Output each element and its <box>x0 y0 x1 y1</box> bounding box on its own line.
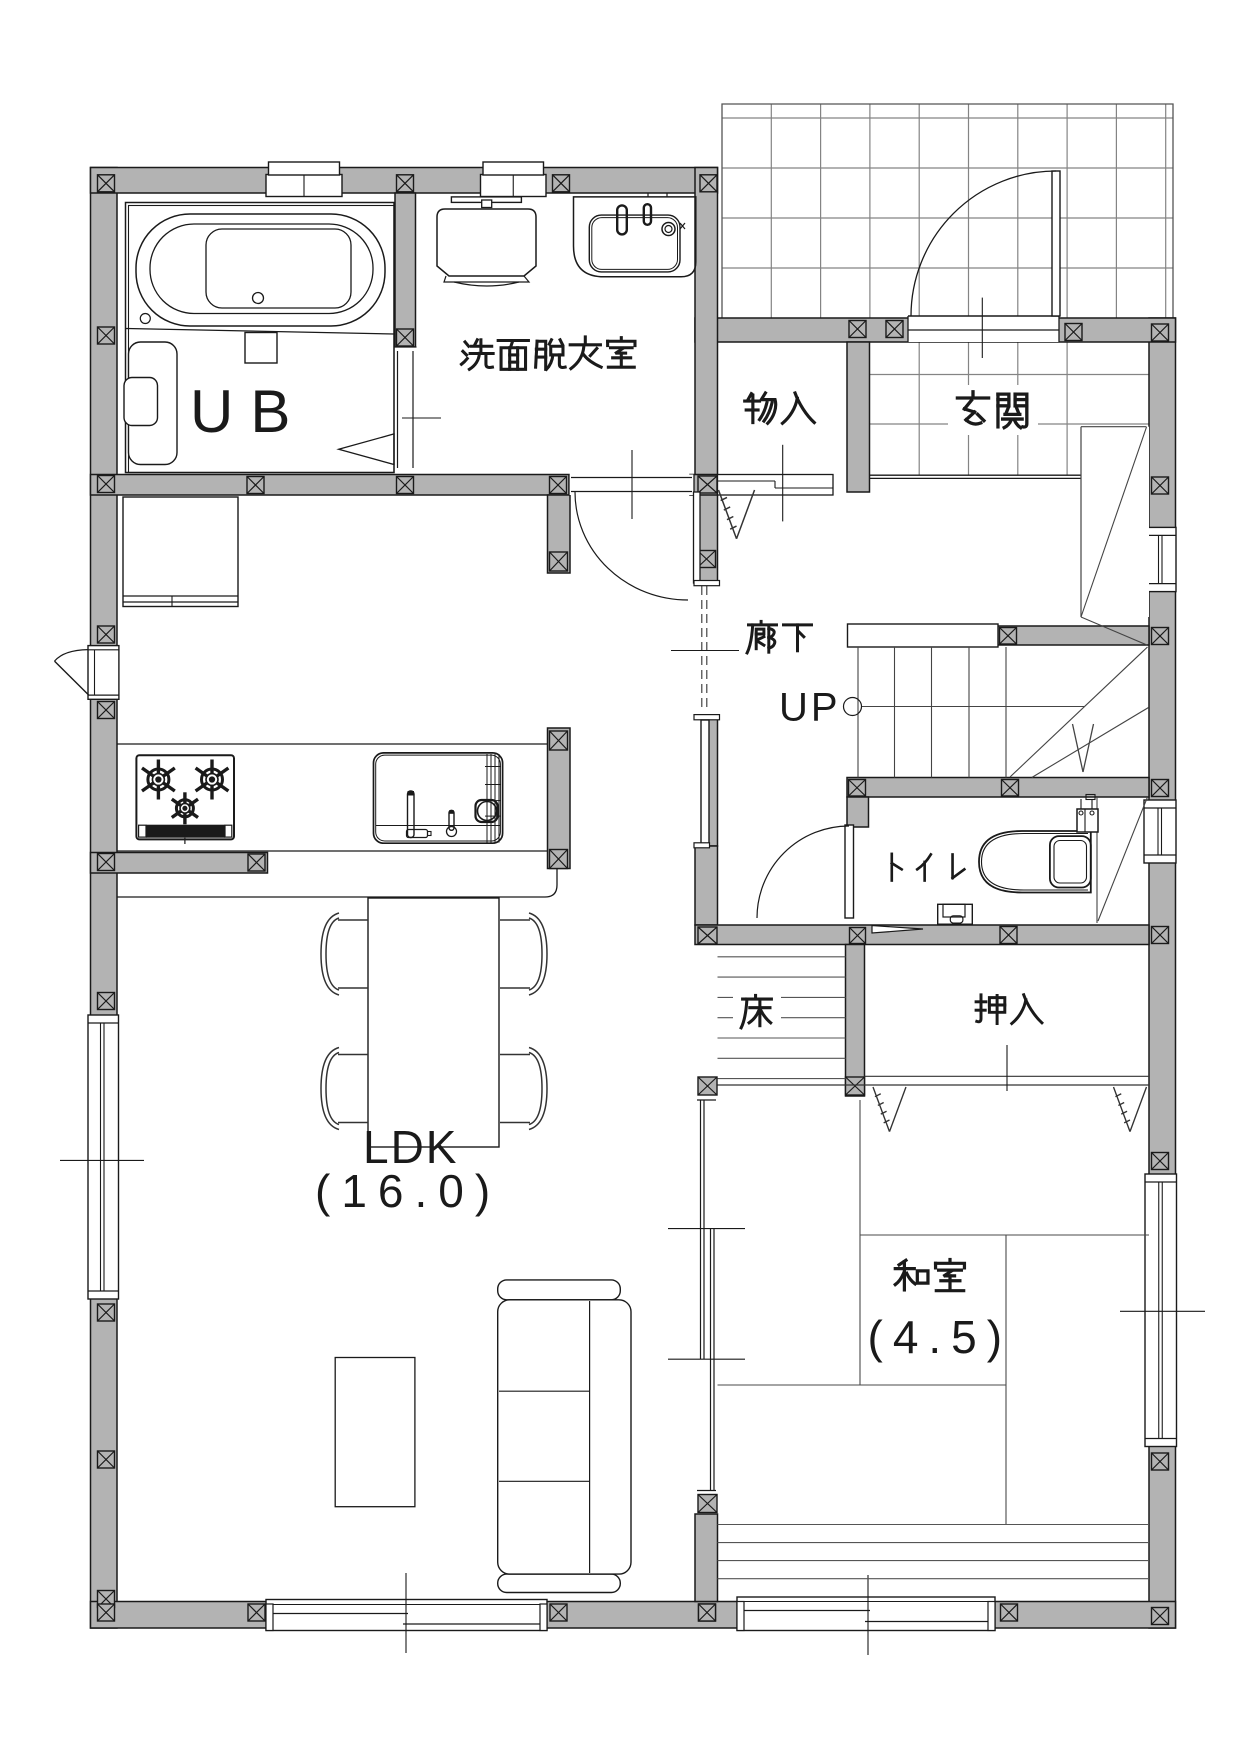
svg-text:(4.5): (4.5) <box>868 1311 1013 1363</box>
svg-text:UP: UP <box>779 686 841 730</box>
svg-text:(16.0): (16.0) <box>315 1165 501 1217</box>
